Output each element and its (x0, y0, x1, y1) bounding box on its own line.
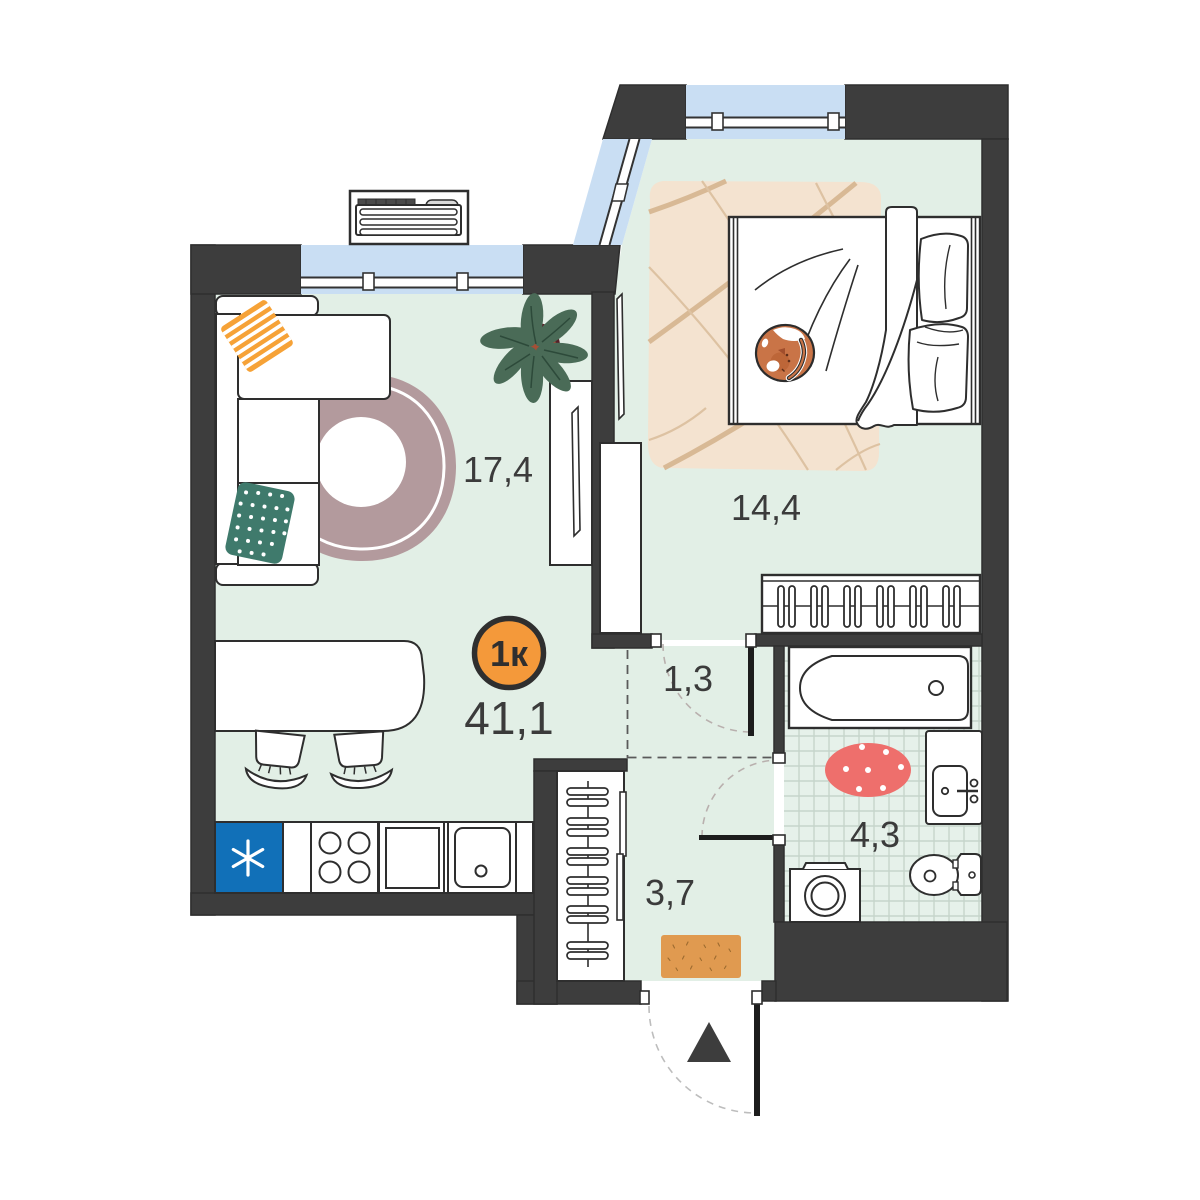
svg-text:4,3: 4,3 (850, 814, 900, 855)
svg-text:14,4: 14,4 (731, 487, 801, 528)
svg-text:1к: 1к (490, 633, 529, 674)
svg-text:1,3: 1,3 (663, 658, 713, 699)
svg-text:41,1: 41,1 (464, 692, 554, 744)
svg-text:3,7: 3,7 (645, 872, 695, 913)
svg-text:17,4: 17,4 (463, 449, 533, 490)
